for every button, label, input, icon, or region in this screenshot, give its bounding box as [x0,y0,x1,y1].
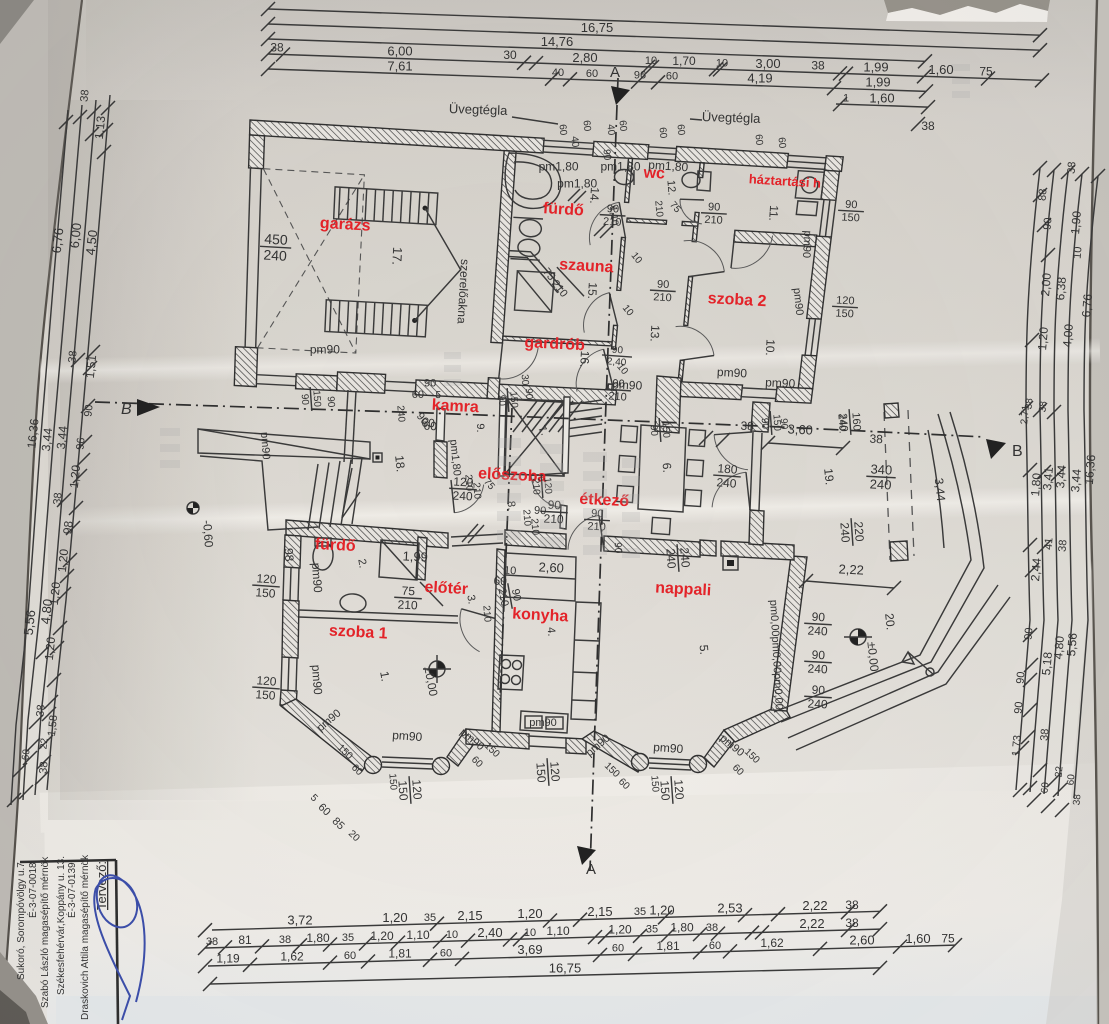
svg-text:38: 38 [279,934,291,946]
svg-text:Sukoró, Sorompóvölgy u.7: Sukoró, Sorompóvölgy u.7 [16,862,27,980]
svg-text:81: 81 [238,933,252,947]
svg-text:4,80: 4,80 [38,598,56,625]
svg-text:35: 35 [634,906,646,918]
svg-text:pm90: pm90 [765,375,796,391]
svg-text:1,13: 1,13 [92,115,108,140]
svg-text:98: 98 [282,548,297,563]
svg-text:30: 30 [519,374,531,386]
svg-text:Üvegtégla: Üvegtégla [449,101,509,118]
svg-text:1: 1 [843,92,849,104]
svg-text:10: 10 [628,250,644,266]
svg-text:2,60: 2,60 [538,559,564,575]
svg-text:38: 38 [1038,400,1050,412]
svg-text:240: 240 [677,547,692,568]
svg-text:41: 41 [1043,537,1056,550]
svg-text:12.: 12. [664,180,677,196]
svg-text:2,40: 2,40 [477,925,502,940]
svg-text:pm1,80: pm1,80 [539,160,579,174]
svg-text:60: 60 [586,68,598,80]
svg-text:pm90: pm90 [653,740,684,756]
svg-text:20.: 20. [882,613,898,631]
svg-text:pm1,80: pm1,80 [648,158,689,175]
svg-text:2,71: 2,71 [1019,404,1032,425]
svg-text:szauna: szauna [559,256,614,276]
svg-text:30: 30 [503,48,517,62]
svg-text:pm1,80: pm1,80 [600,160,640,174]
svg-text:150: 150 [835,308,854,321]
svg-text:3,69: 3,69 [517,942,542,957]
svg-text:38: 38 [206,936,218,948]
svg-text:35: 35 [646,924,658,936]
svg-text:19.: 19. [821,468,837,486]
svg-text:10: 10 [1072,246,1085,259]
svg-text:6,00: 6,00 [67,222,85,249]
svg-text:pm90: pm90 [791,287,806,316]
svg-text:150: 150 [310,390,322,408]
svg-text:340: 340 [870,461,892,477]
svg-text:1,80: 1,80 [306,931,330,945]
svg-text:pm0,00pm0,00pm0,00: pm0,00pm0,00pm0,00 [767,600,785,711]
svg-text:150: 150 [648,775,660,793]
svg-text:1,62: 1,62 [280,950,304,964]
svg-text:60: 60 [675,124,687,136]
svg-text:3,44: 3,44 [1068,468,1084,493]
svg-text:90: 90 [523,388,535,400]
svg-text:38: 38 [37,761,50,774]
svg-text:60: 60 [344,950,356,962]
svg-text:210: 210 [397,597,418,612]
svg-text:240: 240 [263,247,287,264]
svg-text:40: 40 [552,67,564,79]
svg-text:1,20: 1,20 [608,922,632,936]
svg-text:háztartási h: háztartási h [748,171,821,190]
svg-text:1,20: 1,20 [1035,326,1051,351]
svg-text:90: 90 [325,396,337,408]
svg-text:240: 240 [394,405,406,423]
svg-text:150: 150 [659,421,671,439]
svg-text:38: 38 [66,350,79,363]
svg-text:120: 120 [409,779,424,800]
svg-text:1,81: 1,81 [388,947,412,961]
svg-text:1,99: 1,99 [402,548,428,564]
svg-text:90: 90 [612,542,624,554]
svg-text:90: 90 [82,404,95,417]
svg-text:10: 10 [446,929,458,941]
svg-text:1,20: 1,20 [370,929,394,943]
svg-text:1,10: 1,10 [607,206,620,227]
svg-text:2,60: 2,60 [849,933,874,948]
svg-text:220: 220 [851,521,866,542]
svg-text:2,15: 2,15 [587,904,612,919]
svg-text:38: 38 [1039,728,1052,741]
svg-text:11.: 11. [766,205,781,222]
svg-text:120: 120 [671,779,686,800]
svg-text:pm90: pm90 [392,728,423,744]
svg-text:240: 240 [663,548,678,569]
svg-text:2,22: 2,22 [838,561,864,577]
svg-text:Draskovich Attila magasépítő m: Draskovich Attila magasépítő mérnök [80,854,91,1020]
svg-text:38: 38 [51,492,64,505]
svg-text:120: 120 [547,761,562,782]
svg-text:2.: 2. [355,558,368,569]
svg-text:40: 40 [569,136,581,148]
svg-text:96: 96 [74,437,87,450]
svg-text:garázs: garázs [319,215,371,235]
svg-text:60: 60 [423,419,437,434]
svg-text:2,44: 2,44 [1028,557,1044,582]
svg-text:240: 240 [807,623,828,638]
svg-text:38: 38 [845,916,859,930]
svg-text:85: 85 [330,815,347,832]
svg-text:6,00: 6,00 [387,44,412,59]
svg-text:2,00: 2,00 [1038,272,1054,297]
svg-text:3,00: 3,00 [755,56,780,71]
svg-text:90: 90 [657,278,670,291]
svg-text:6,38: 6,38 [1053,276,1069,301]
svg-text:1,80: 1,80 [670,921,694,935]
svg-text:1,60: 1,60 [869,91,894,106]
svg-text:3,44: 3,44 [54,425,70,450]
svg-text:150: 150 [507,391,519,409]
svg-text:90: 90 [299,394,311,406]
svg-text:3,44: 3,44 [39,427,55,452]
svg-text:60: 60 [616,776,632,792]
svg-text:210: 210 [470,482,482,500]
svg-text:1,60: 1,60 [905,931,930,946]
svg-text:pm1,80: pm1,80 [557,177,597,191]
svg-text:1,90: 1,90 [1068,210,1084,235]
svg-text:90: 90 [811,610,825,625]
svg-text:60: 60 [316,801,333,818]
svg-text:120: 120 [256,571,277,586]
svg-text:pm90: pm90 [800,230,814,258]
svg-text:2,22: 2,22 [799,916,824,931]
svg-text:90: 90 [811,648,825,663]
svg-text:150: 150 [533,762,548,783]
svg-text:90: 90 [708,201,721,214]
svg-text:9.: 9. [474,423,486,432]
svg-text:5.: 5. [697,644,712,655]
svg-text:1,20: 1,20 [67,464,83,489]
svg-text:210: 210 [480,605,492,623]
svg-text:210: 210 [652,200,664,218]
svg-text:60: 60 [1066,773,1078,785]
svg-text:22: 22 [38,737,50,750]
svg-text:pm90: pm90 [717,365,748,381]
svg-text:Szabó László magasépítő mérnök: Szabó László magasépítő mérnök [40,856,51,1008]
svg-text:150: 150 [255,687,276,702]
svg-text:pm90: pm90 [612,377,643,393]
svg-text:38: 38 [845,898,859,912]
svg-text:98: 98 [60,520,75,535]
svg-text:pm90: pm90 [529,717,557,729]
svg-text:1,20: 1,20 [55,548,71,573]
svg-text:38: 38 [921,119,935,133]
svg-text:210: 210 [653,291,672,304]
svg-text:1,99: 1,99 [865,75,890,90]
svg-text:5: 5 [435,390,442,401]
svg-text:60: 60 [412,389,424,401]
svg-text:38: 38 [740,419,754,434]
svg-text:1,99: 1,99 [863,60,888,75]
svg-text:10: 10 [504,565,517,578]
svg-text:1,62: 1,62 [760,936,784,950]
svg-text:3.: 3. [464,594,477,605]
svg-text:16.: 16. [577,350,592,367]
svg-text:előtér: előtér [424,579,468,598]
svg-text:240: 240 [837,522,852,543]
svg-text:90: 90 [648,425,660,437]
svg-text:nappali: nappali [655,580,712,600]
svg-text:20: 20 [346,828,362,844]
svg-text:1,70: 1,70 [672,54,696,68]
svg-text:6,76: 6,76 [49,227,67,254]
svg-text:pm1,80: pm1,80 [447,439,463,477]
svg-text:5,18: 5,18 [1039,651,1055,676]
svg-text:2,15: 2,15 [457,908,482,923]
svg-text:90: 90 [1013,701,1026,714]
svg-text:7,61: 7,61 [387,59,412,74]
svg-text:60: 60 [776,137,788,149]
svg-text:Székesfehérvár,Koppány u. 13.: Székesfehérvár,Koppány u. 13. [56,856,67,995]
svg-text:35: 35 [424,912,436,924]
svg-text:88: 88 [1037,188,1050,201]
svg-text:38: 38 [869,432,883,447]
svg-text:10: 10 [620,303,636,319]
svg-text:±0,00: ±0,00 [864,641,881,673]
svg-text:5,56: 5,56 [1064,632,1080,657]
svg-text:180: 180 [717,461,738,476]
svg-text:120: 120 [836,295,855,308]
svg-text:38: 38 [1072,793,1084,805]
svg-text:16,75: 16,75 [549,961,582,976]
svg-text:10.: 10. [763,339,778,356]
svg-text:15.: 15. [585,282,600,299]
svg-text:60: 60 [557,124,569,136]
svg-text:60: 60 [440,947,452,959]
svg-text:60: 60 [666,71,678,83]
svg-text:240: 240 [869,476,891,492]
svg-text:É-3-07-0018: É-3-07-0018 [26,862,39,918]
svg-text:17.: 17. [389,247,405,266]
svg-text:60: 60 [1040,781,1052,793]
svg-text:1,20: 1,20 [42,636,58,661]
svg-text:Üvegtégla: Üvegtégla [702,109,762,126]
svg-text:1,20: 1,20 [382,910,407,925]
svg-text:10: 10 [716,57,728,69]
svg-text:60: 60 [469,754,485,770]
svg-text:18.: 18. [392,455,408,473]
svg-text:60: 60 [709,940,721,952]
svg-text:35: 35 [342,932,354,944]
svg-text:1,19: 1,19 [216,951,240,965]
svg-text:5: 5 [308,792,320,804]
svg-text:1,80: 1,80 [1028,472,1044,497]
svg-text:22: 22 [1054,765,1066,777]
svg-text:75: 75 [401,584,415,599]
svg-text:4,50: 4,50 [83,229,101,256]
svg-text:B: B [121,401,132,418]
svg-text:13.: 13. [647,325,662,342]
svg-text:A: A [586,861,596,878]
svg-text:1,58: 1,58 [46,714,60,737]
svg-text:90: 90 [811,683,825,698]
svg-text:90: 90 [1015,671,1028,684]
svg-text:1,20: 1,20 [517,906,542,921]
svg-text:1,20: 1,20 [649,902,674,917]
svg-text:60: 60 [657,127,669,139]
svg-text:90: 90 [496,395,508,407]
svg-text:210: 210 [529,478,541,496]
svg-text:450: 450 [264,231,288,248]
svg-text:10: 10 [645,55,657,67]
svg-text:75: 75 [667,200,683,216]
svg-text:90: 90 [611,345,623,357]
svg-text:pm90: pm90 [258,432,272,460]
svg-text:240: 240 [807,696,828,711]
svg-text:210: 210 [528,518,540,536]
svg-text:pm90: pm90 [309,562,325,593]
svg-text:90: 90 [845,199,858,212]
svg-text:4,19: 4,19 [747,71,772,86]
svg-text:6.: 6. [660,462,675,473]
svg-text:pm90: pm90 [310,342,340,356]
svg-text:3,60: 3,60 [787,421,813,437]
svg-text:10: 10 [524,927,536,939]
svg-text:60: 60 [753,134,765,146]
svg-text:1,81: 1,81 [656,939,680,953]
svg-text:szerelőakna: szerelőakna [455,259,472,325]
svg-text:150: 150 [255,585,276,600]
svg-text:1.: 1. [377,670,393,682]
svg-text:1,73: 1,73 [1010,735,1024,757]
svg-text:38: 38 [270,40,284,54]
svg-text:90: 90 [424,378,436,390]
svg-text:210: 210 [704,214,723,227]
svg-text:75: 75 [941,931,955,945]
svg-text:1,10: 1,10 [546,924,570,938]
svg-text:90: 90 [601,149,613,161]
svg-text:pm90: pm90 [309,664,325,695]
svg-text:B: B [1012,443,1023,460]
svg-text:1,10: 1,10 [406,928,430,942]
svg-text:60: 60 [581,120,593,132]
svg-text:240.: 240. [835,414,847,434]
svg-text:75: 75 [979,64,993,78]
svg-text:96: 96 [634,70,646,82]
svg-text:szoba 2: szoba 2 [707,290,767,310]
svg-text:1,51: 1,51 [83,354,99,379]
svg-text:38: 38 [1066,161,1079,174]
svg-text:16,75: 16,75 [581,20,614,35]
svg-text:60: 60 [612,943,624,955]
svg-text:fürdő: fürdő [314,536,356,555]
svg-text:-0,60: -0,60 [200,520,216,549]
svg-text:szoba 1: szoba 1 [328,622,388,642]
svg-text:4.: 4. [545,627,558,637]
svg-text:fürdő: fürdő [542,200,584,219]
svg-text:2,53: 2,53 [717,901,742,916]
svg-text:gardrób: gardrób [524,334,585,354]
svg-text:6,76: 6,76 [1079,293,1095,318]
svg-text:38: 38 [34,704,47,717]
svg-text:38: 38 [1057,539,1070,552]
svg-text:38: 38 [706,922,718,934]
svg-text:5,56: 5,56 [21,609,39,636]
svg-text:120: 120 [256,673,277,688]
svg-text:240: 240 [716,475,737,490]
svg-text:60: 60 [20,748,32,761]
svg-text:Tervező:: Tervező: [94,861,109,910]
svg-text:90: 90 [759,418,771,430]
svg-text:38: 38 [78,89,91,102]
svg-text:3,72: 3,72 [287,913,312,928]
svg-text:60: 60 [730,762,746,778]
svg-text:14,76: 14,76 [541,34,574,49]
svg-text:210: 210 [608,390,627,403]
svg-text:2,22: 2,22 [802,898,827,913]
svg-text:2,80: 2,80 [572,50,597,65]
svg-text:90: 90 [1023,627,1036,640]
svg-text:160: 160 [849,412,862,431]
svg-text:38: 38 [811,59,825,73]
svg-text:60: 60 [617,120,629,132]
svg-text:4,00: 4,00 [1060,323,1076,348]
svg-text:150: 150 [841,212,860,225]
svg-text:240: 240 [807,661,828,676]
svg-text:90: 90 [1042,217,1055,230]
svg-text:150: 150 [602,760,622,780]
svg-text:90: 90 [778,418,790,430]
svg-text:3,44: 3,44 [932,477,948,502]
svg-text:40: 40 [605,124,617,136]
svg-text:konyha: konyha [512,606,569,626]
svg-text:150: 150 [386,773,398,791]
svg-text:16,36: 16,36 [1082,454,1099,485]
svg-text:1,60: 1,60 [928,62,953,77]
